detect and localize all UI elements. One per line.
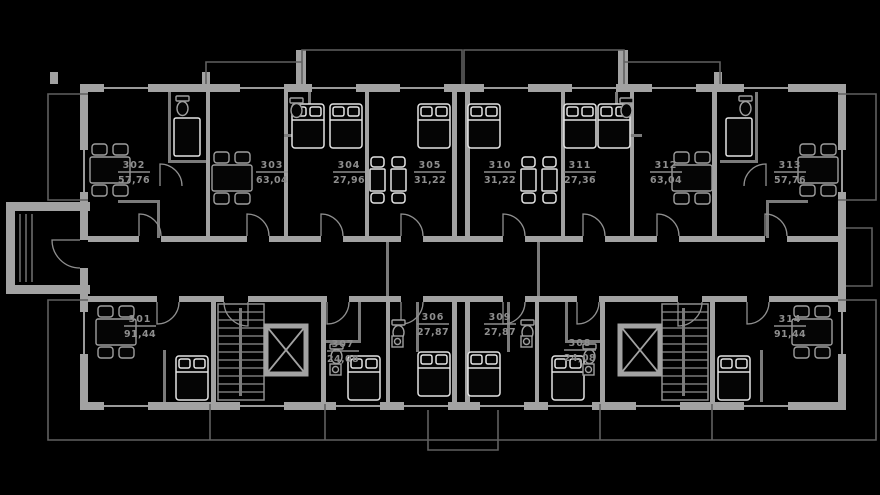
entrance-vestibule-walls (6, 202, 90, 294)
dining-set-icon (798, 144, 838, 196)
unit-area: 91,44 (774, 329, 806, 340)
furniture-layer (90, 96, 838, 400)
unit-number: 309 (489, 312, 512, 323)
shower-icon (174, 118, 200, 156)
unit-303[interactable]: 303 63,04 (256, 160, 288, 186)
unit-area: 31,22 (484, 175, 516, 186)
corridor-wall-upper (88, 236, 838, 242)
unit-area: 63,04 (650, 175, 682, 186)
dinette-icon (521, 157, 557, 203)
unit-311[interactable]: 311 27,36 (564, 160, 596, 186)
unit-number: 306 (422, 312, 445, 323)
floor-plan-canvas: 302 57,76 303 63,04 304 27,96 305 31,22 … (0, 0, 880, 495)
toilet-icon (290, 98, 303, 118)
outer-wall-right (838, 84, 846, 410)
toilet-icon (176, 96, 189, 116)
unit-305[interactable]: 305 31,22 (414, 160, 446, 186)
bed-icon (468, 104, 500, 148)
washer-icon (583, 364, 594, 375)
unit-304[interactable]: 304 27,96 (333, 160, 365, 186)
unit-number: 313 (779, 160, 802, 171)
unit-area: 27,96 (333, 175, 365, 186)
shower-icon (726, 118, 752, 156)
unit-area: 27,87 (484, 327, 516, 338)
balcony-rails (48, 50, 876, 450)
washer-icon (521, 336, 532, 347)
unit-number: 307 (332, 339, 355, 350)
outer-wall-top (80, 84, 846, 92)
unit-area: 57,76 (118, 175, 150, 186)
unit-area: 91,44 (124, 329, 156, 340)
unit-number: 314 (779, 314, 802, 325)
unit-area: 27,87 (417, 327, 449, 338)
outer-wall-left (80, 84, 88, 410)
unit-number: 312 (655, 160, 678, 171)
bed-icon (330, 104, 362, 148)
outer-wall-bottom (80, 402, 846, 410)
toilet-icon (620, 98, 633, 118)
unit-number: 301 (129, 314, 152, 325)
unit-number: 304 (338, 160, 361, 171)
unit-number: 310 (489, 160, 512, 171)
entrance-steps (20, 214, 32, 282)
unit-area: 24,08 (327, 354, 359, 365)
dinette-icon (370, 157, 406, 203)
washer-icon (330, 364, 341, 375)
washer-icon (392, 336, 403, 347)
unit-area: 27,36 (564, 175, 596, 186)
floor-plan: 302 57,76 303 63,04 304 27,96 305 31,22 … (0, 0, 880, 495)
bed-icon (418, 352, 450, 396)
toilet-icon (739, 96, 752, 116)
elevator-left-icon (266, 326, 306, 374)
facade-piers (50, 50, 722, 84)
unit-number: 302 (123, 160, 146, 171)
unit-area: 24,08 (564, 353, 596, 364)
unit-309[interactable]: 309 27,87 (484, 312, 516, 338)
bed-icon (564, 104, 596, 148)
dining-set-icon (212, 152, 252, 204)
unit-number: 308 (569, 338, 592, 349)
bed-icon (418, 104, 450, 148)
unit-number: 311 (569, 160, 592, 171)
unit-310[interactable]: 310 31,22 (484, 160, 516, 186)
bed-icon (468, 352, 500, 396)
staircase-right (662, 304, 708, 400)
elevator-right-icon (620, 326, 660, 374)
bed-icon (176, 356, 208, 400)
staircase-left (218, 304, 264, 400)
corridor-wall-lower (88, 296, 838, 302)
bed-icon (718, 356, 750, 400)
interior-partitions (118, 92, 808, 402)
unit-306[interactable]: 306 27,87 (417, 312, 449, 338)
unit-number: 305 (419, 160, 442, 171)
unit-number: 303 (261, 160, 284, 171)
unit-area: 57,76 (774, 175, 806, 186)
unit-area: 31,22 (414, 175, 446, 186)
unit-area: 63,04 (256, 175, 288, 186)
